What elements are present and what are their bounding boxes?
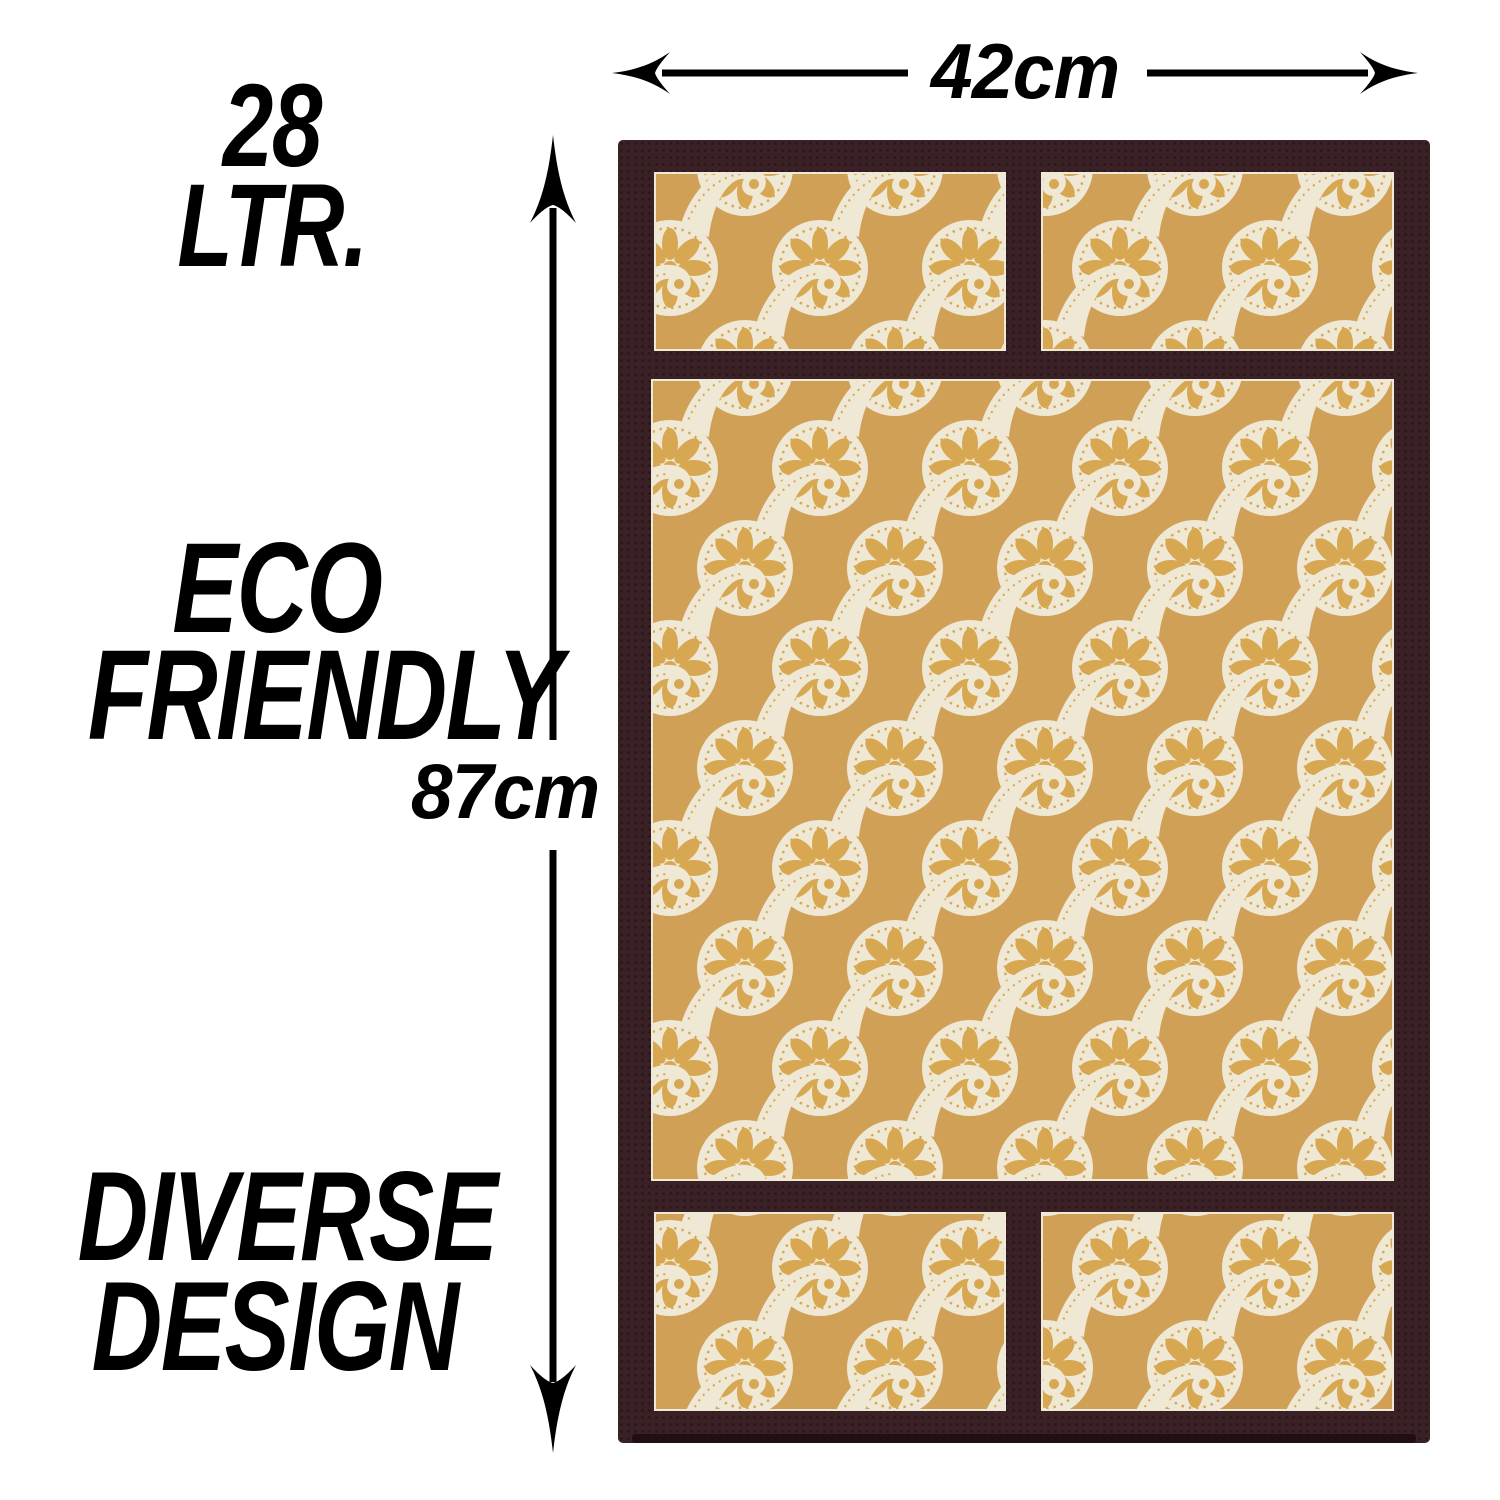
- width-arrow-icon: [598, 40, 1438, 110]
- cover-bottom-edge: [632, 1434, 1416, 1443]
- eco-friendly-label: ECO FRIENDLY: [17, 535, 537, 749]
- arrowhead-right-icon: [1360, 52, 1418, 94]
- product-image: [618, 140, 1430, 1443]
- panel-bottom-right: [1042, 1213, 1393, 1410]
- capacity-line2: LTR.: [177, 176, 367, 276]
- panel-middle: [652, 380, 1393, 1180]
- panel-bottom-left: [655, 1213, 1005, 1410]
- eco-line2: FRIENDLY: [88, 642, 562, 749]
- panel-top-right: [1042, 173, 1393, 350]
- height-arrow-icon: [516, 126, 590, 1466]
- diverse-design-label: DIVERSE DESIGN: [15, 1161, 535, 1381]
- product-infographic: 28 LTR. ECO FRIENDLY DIVERSE DESIGN 42cm…: [0, 0, 1500, 1500]
- design-line2: DESIGN: [92, 1271, 458, 1381]
- panel-top-left: [655, 173, 1005, 350]
- capacity-label: 28 LTR.: [92, 76, 452, 276]
- arrowhead-left-icon: [612, 52, 670, 94]
